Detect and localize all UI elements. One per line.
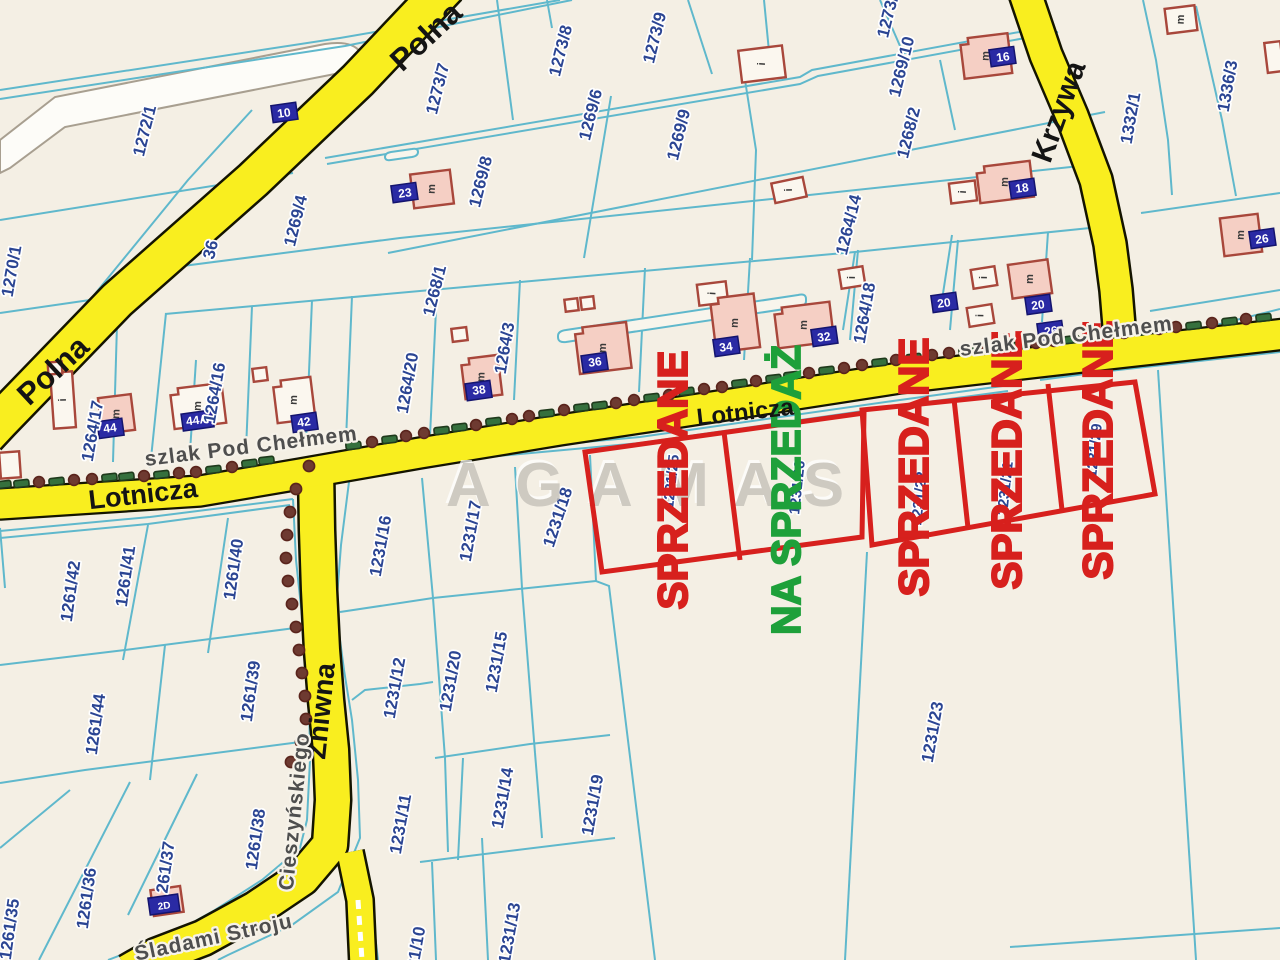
svg-text:i: i <box>974 314 986 317</box>
svg-text:i: i <box>957 190 969 194</box>
svg-text:26: 26 <box>1254 231 1269 247</box>
svg-text:36: 36 <box>587 354 602 370</box>
svg-text:i: i <box>756 62 768 66</box>
svg-text:2D: 2D <box>157 900 171 913</box>
svg-text:m: m <box>110 409 123 420</box>
svg-text:18: 18 <box>1014 180 1029 196</box>
svg-text:m: m <box>426 184 439 195</box>
svg-text:m: m <box>1024 274 1036 284</box>
svg-text:i: i <box>706 292 718 296</box>
svg-text:m: m <box>1175 14 1188 25</box>
svg-text:SPRZEDANE: SPRZEDANE <box>1074 320 1121 579</box>
svg-text:10: 10 <box>276 105 291 121</box>
svg-text:23: 23 <box>397 185 412 201</box>
svg-text:i: i <box>978 276 990 279</box>
svg-text:SPRZEDANE: SPRZEDANE <box>890 337 937 596</box>
svg-text:16: 16 <box>995 49 1010 65</box>
svg-text:34: 34 <box>718 339 733 355</box>
svg-text:20: 20 <box>1030 297 1045 313</box>
svg-text:i: i <box>783 188 795 191</box>
svg-text:m: m <box>288 395 301 406</box>
svg-text:m: m <box>1235 230 1248 241</box>
svg-text:SPRZEDANE: SPRZEDANE <box>983 330 1030 589</box>
svg-text:i: i <box>57 398 69 401</box>
svg-text:44: 44 <box>102 420 117 436</box>
svg-text:m: m <box>597 343 610 354</box>
svg-text:SPRZEDANE: SPRZEDANE <box>649 350 696 609</box>
svg-text:20: 20 <box>936 295 951 311</box>
svg-text:38: 38 <box>471 382 486 398</box>
svg-text:m: m <box>729 318 742 329</box>
svg-text:32: 32 <box>816 329 831 345</box>
svg-text:m: m <box>798 320 811 331</box>
svg-text:NA SPRZEDAŻ: NA SPRZEDAŻ <box>763 345 809 635</box>
svg-text:i: i <box>846 276 858 279</box>
